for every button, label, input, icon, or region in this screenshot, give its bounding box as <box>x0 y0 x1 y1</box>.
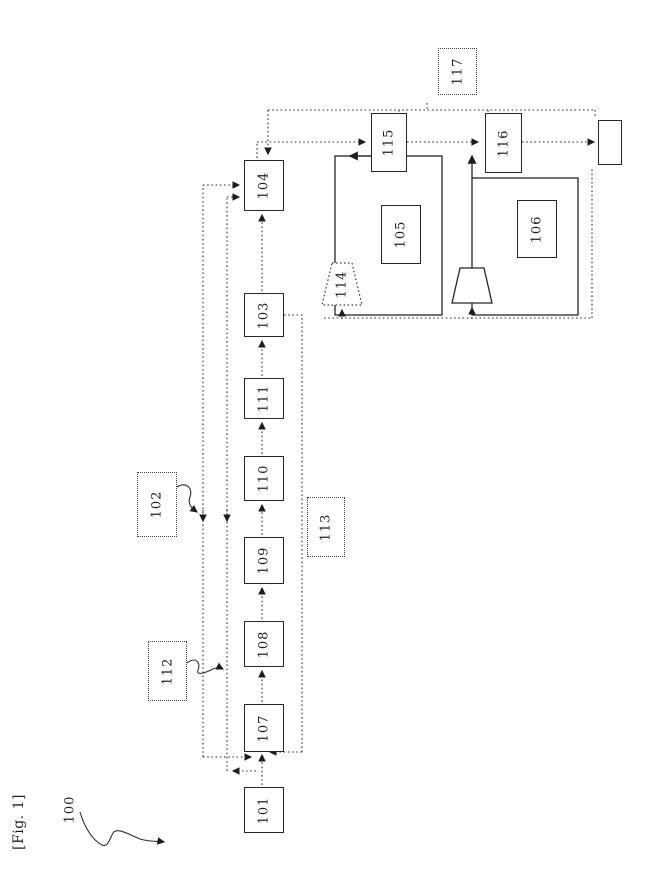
box-107: 107 <box>244 704 284 752</box>
ref-100-arrow <box>80 812 164 846</box>
box-115-label: 115 <box>381 129 396 157</box>
container-feed-lines <box>350 156 472 178</box>
overall-reference-100: 100 <box>56 788 84 830</box>
leader-112 <box>187 660 223 673</box>
callout-112: 112 <box>148 641 187 701</box>
box-103: 103 <box>244 293 284 337</box>
box-104: 104 <box>244 160 284 211</box>
box-103-label: 103 <box>256 301 271 329</box>
callout-102: 102 <box>137 472 177 537</box>
box-101: 101 <box>244 787 284 833</box>
callout-117: 117 <box>438 48 477 95</box>
speaker-114-label: 114 <box>334 270 349 298</box>
box-104-label: 104 <box>256 172 271 200</box>
box-110: 110 <box>244 456 284 501</box>
signal-lines <box>0 0 648 876</box>
box-109: 109 <box>244 537 284 584</box>
output-terminal-box <box>598 120 622 165</box>
callout-102-label: 102 <box>149 491 164 519</box>
leader-102 <box>177 485 197 512</box>
box-101-label: 101 <box>256 796 271 824</box>
speaker-114-label-wrap: 114 <box>326 266 358 302</box>
callout-117-label: 117 <box>450 58 465 86</box>
figure-tag-text: [Fig. 1] <box>11 794 27 850</box>
box-107-label: 107 <box>256 714 271 742</box>
box-116-label: 116 <box>496 129 511 157</box>
box-108-label: 108 <box>256 630 271 658</box>
box-106: 106 <box>517 200 557 258</box>
callout-112-label: 112 <box>160 657 175 685</box>
box-111: 111 <box>244 378 284 419</box>
box-108: 108 <box>244 621 284 667</box>
box-105: 105 <box>381 205 421 264</box>
figure-tag: [Fig. 1] <box>4 778 34 866</box>
box-105-label: 105 <box>393 221 408 249</box>
patent-figure-page: [Fig. 1] 100 101 107 108 109 110 111 103… <box>0 0 648 876</box>
callout-113: 113 <box>307 497 345 557</box>
box-111-label: 111 <box>256 385 271 413</box>
callout-113-label: 113 <box>318 513 333 541</box>
box-115: 115 <box>371 113 407 172</box>
box-109-label: 109 <box>256 547 271 575</box>
speaker-trapezoid-2 <box>452 268 492 303</box>
box-116: 116 <box>485 113 522 173</box>
box-106-label: 106 <box>529 215 544 243</box>
box-110-label: 110 <box>256 465 271 493</box>
overall-reference-text: 100 <box>62 795 77 823</box>
